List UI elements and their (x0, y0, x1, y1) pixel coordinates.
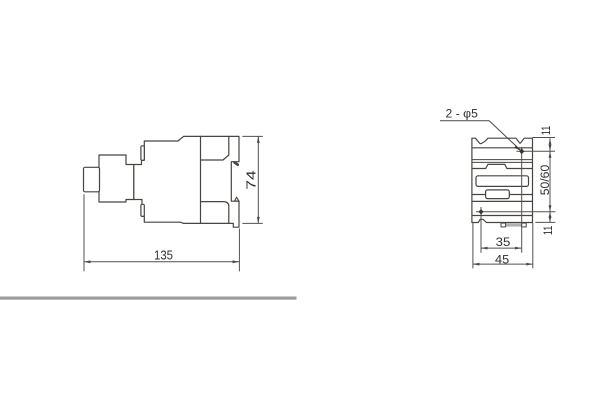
svg-text:11: 11 (541, 126, 553, 136)
svg-text:35: 35 (496, 235, 511, 249)
svg-text:50/60: 50/60 (540, 165, 552, 196)
svg-text:74: 74 (243, 170, 258, 190)
svg-text:45: 45 (495, 253, 509, 267)
svg-text:135: 135 (154, 248, 173, 263)
svg-text:11: 11 (543, 226, 555, 236)
svg-text:2 - φ5: 2 - φ5 (446, 107, 479, 121)
